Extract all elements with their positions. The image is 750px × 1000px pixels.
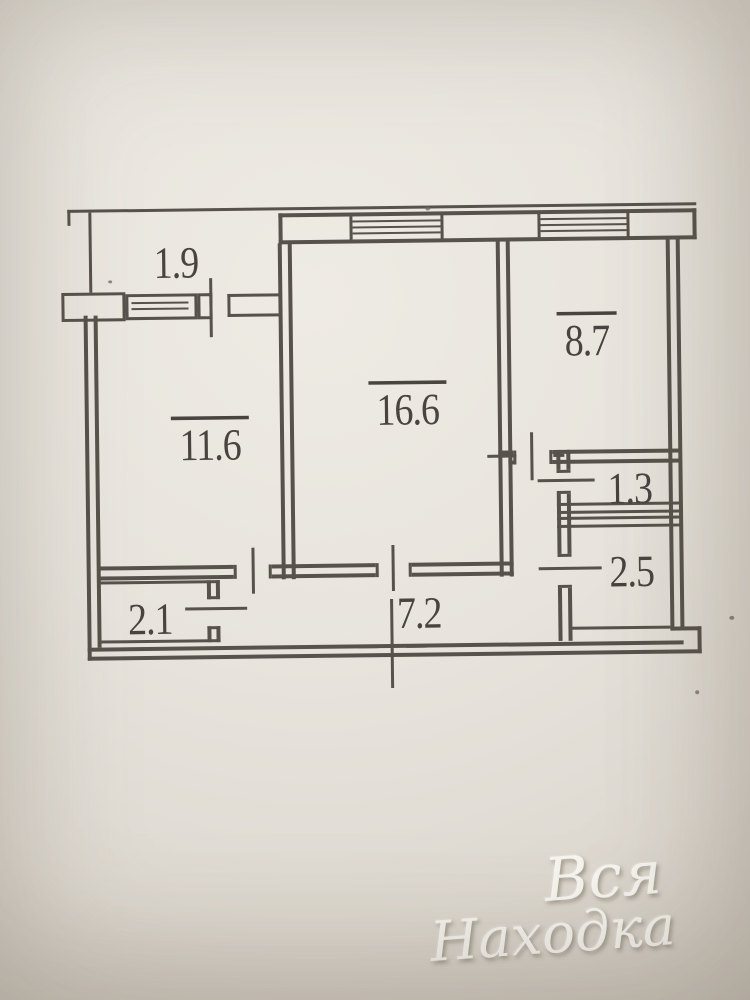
room-label-wc: 1.3 (590, 463, 669, 512)
wall-junction-tick (487, 454, 516, 457)
top-wall-inner-line (279, 235, 697, 244)
room-area-closet: 2.1 (120, 594, 181, 643)
nook-wall-left-seg-1 (556, 450, 560, 470)
balcony-wall-upper-line (227, 293, 279, 297)
room-left-door-tick (251, 548, 255, 594)
balcony-wall-cap (227, 294, 230, 317)
room-area-bathroom: 2.5 (601, 546, 662, 595)
upper-outline-hook (67, 210, 70, 226)
wc-door-jamb-top (557, 470, 571, 473)
nook-wall-right-seg-1 (566, 450, 570, 470)
window-room-center-right-jamb (440, 214, 443, 239)
wall-center-kitchen-left-line (496, 241, 504, 577)
room-label-balcony: 1.9 (138, 237, 215, 286)
left-wall-outer-line (84, 316, 92, 661)
closet-door-tick (185, 607, 247, 611)
left-wall-inner-line (94, 316, 102, 648)
room-label-closet: 2.1 (110, 593, 191, 642)
room-area-hallway: 7.2 (389, 587, 450, 636)
room-label-room-center: 16.6 (353, 380, 462, 433)
top-wall-outer-line (278, 208, 696, 217)
entrance-door-tick-dash-left (359, 645, 379, 648)
room-center-door-jamb-1 (376, 563, 379, 577)
hall-wall-bottom-seg-3 (412, 571, 514, 576)
window-kitchen-hatch-2 (540, 223, 626, 226)
bathroom-top-wall-line-2 (557, 523, 682, 528)
bottom-right-step-cap (697, 626, 701, 653)
closet-door-jamb-top (207, 596, 220, 599)
room-area-balcony: 1.9 (145, 237, 206, 286)
bottom-wall-outer-line (88, 649, 702, 661)
room-label-room-left: 11.6 (157, 416, 264, 469)
wall-rooms-divider-left-line (278, 243, 286, 579)
entrance-door-tick-dash-right (407, 645, 427, 648)
closet-top-line (100, 580, 220, 584)
kitchen-wall-top-seg-2 (552, 448, 681, 454)
room-center-door-jamb-2 (409, 563, 412, 577)
window-kitchen-hatch-1 (540, 217, 626, 220)
room-center-door-tick (391, 545, 395, 591)
room-area-wc: 1.3 (599, 463, 660, 512)
room-left-door-jamb-1 (234, 565, 237, 579)
nook-wall-left-seg-3 (558, 588, 563, 641)
bathroom-bottom-line (571, 626, 670, 630)
room-area-kitchen: 8.7 (556, 311, 617, 364)
bathroom-top-wall-line-1 (557, 515, 682, 520)
top-wall-right-cap (692, 208, 696, 239)
closet-door-jamb-bottom (207, 626, 220, 629)
window-kitchen-hatch-3 (541, 229, 627, 232)
room-label-kitchen: 8.7 (545, 311, 630, 364)
room-area-room-center: 16.6 (368, 380, 447, 433)
room-left-door-jamb-2 (269, 564, 272, 578)
kitchen-door-jamb-right (549, 450, 552, 464)
window-room-center-hatch-1 (352, 219, 440, 222)
balcony-wall-lower-line (228, 313, 280, 317)
window-room-center-hatch-3 (353, 231, 441, 234)
wc-door-jamb-bottom (557, 491, 571, 494)
paper-speck (729, 616, 734, 620)
room-label-bathroom: 2.5 (591, 546, 672, 595)
bathroom-door-jamb-bottom (558, 585, 572, 588)
window-kitchen-right-jamb (626, 212, 629, 237)
balcony-side-line (88, 213, 92, 293)
balcony-door-tick (209, 278, 213, 337)
paper-speck (108, 280, 112, 283)
hall-wall-bottom-seg-2 (272, 573, 376, 578)
hall-wall-top-seg-2 (272, 563, 376, 568)
bathroom-door-jamb-top (558, 554, 572, 557)
window-room-center-hatch-2 (353, 225, 441, 228)
paper-speck (695, 690, 699, 694)
right-wall-outer-line (676, 238, 685, 628)
paper-speck (425, 206, 430, 210)
hall-wall-top-seg-1 (100, 565, 234, 571)
room-label-hallway: 7.2 (379, 587, 460, 636)
photo-paper-background: 1.9 11.6 16.6 8.7 1.3 2.5 2.1 7.2 Вся Н (0, 0, 750, 1000)
watermark: Вся Находка (425, 837, 750, 970)
top-wall-left-cap (278, 213, 282, 244)
room-area-room-left: 11.6 (171, 416, 249, 469)
kitchen-door-tick (530, 432, 534, 480)
wc-door-tick (538, 479, 595, 483)
wall-center-kitchen-right-line (506, 241, 514, 577)
nook-wall-right-seg-3 (568, 588, 573, 641)
hall-wall-top-seg-3 (412, 561, 514, 566)
wall-rooms-divider-right-line (288, 243, 296, 579)
